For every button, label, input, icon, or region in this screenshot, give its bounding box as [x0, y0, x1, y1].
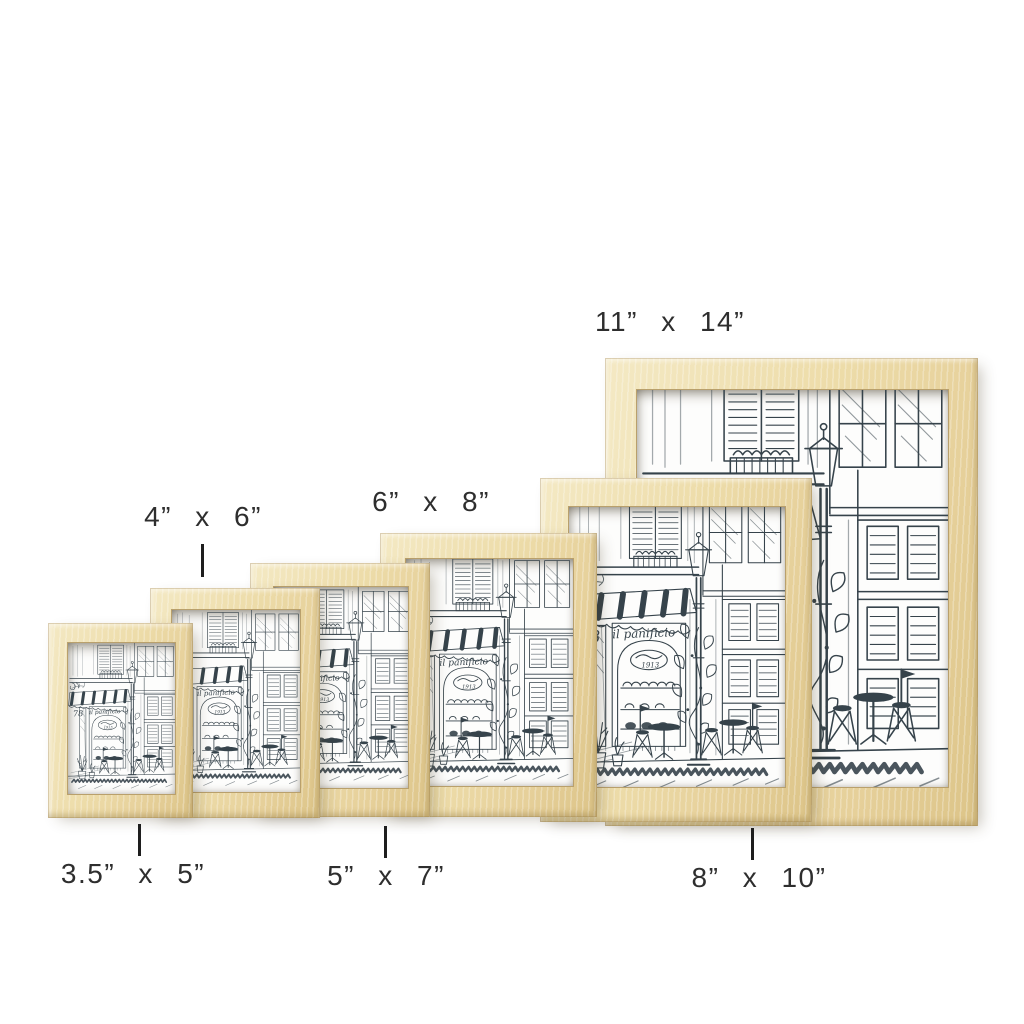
- size-label-5x7: 5” x 7”: [327, 860, 445, 892]
- product-size-comparison-image: 78 il panificio 1913: [0, 0, 1024, 1024]
- size-label-3.5x5: 3.5” x 5”: [61, 858, 205, 890]
- frame-art-8x10: [568, 506, 786, 788]
- size-label-6x8: 6” x 8”: [372, 486, 490, 518]
- size-label-8x10: 8” x 10”: [692, 862, 827, 894]
- leader-tick-8x10: [751, 828, 754, 860]
- size-label-4x6: 4” x 6”: [144, 501, 262, 533]
- leader-tick-3.5x5: [138, 824, 141, 856]
- size-label-11x14: 11” x 14”: [595, 306, 745, 338]
- cafe-sketch-artwork: [406, 559, 573, 786]
- picture-frame-3.5x5: [48, 623, 193, 818]
- leader-tick-5x7: [384, 826, 387, 858]
- frame-art-6x8: [405, 558, 574, 787]
- frame-art-3.5x5: [67, 642, 176, 795]
- cafe-sketch-artwork: [569, 507, 785, 787]
- leader-tick-4x6: [201, 544, 204, 577]
- cafe-sketch-artwork: [68, 643, 175, 794]
